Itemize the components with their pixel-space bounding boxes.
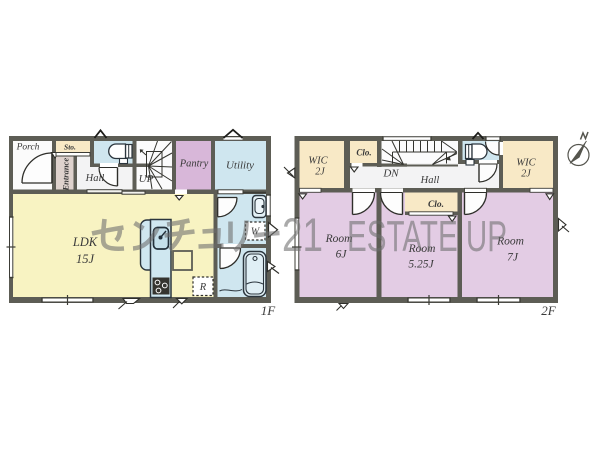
svg-text:ESTATE UP: ESTATE UP	[347, 212, 507, 261]
svg-text:Porch: Porch	[16, 143, 40, 153]
svg-text:Utility: Utility	[226, 160, 254, 172]
svg-text:R: R	[199, 282, 207, 293]
svg-text:Clo.: Clo.	[428, 200, 444, 210]
svg-text:WIC: WIC	[308, 156, 328, 167]
svg-text:LDK: LDK	[72, 235, 98, 249]
svg-text:Entrance: Entrance	[61, 158, 71, 192]
svg-text:21: 21	[282, 208, 323, 261]
svg-text:DN: DN	[382, 168, 399, 180]
svg-text:Hall: Hall	[420, 175, 440, 186]
svg-text:Sto.: Sto.	[64, 143, 76, 152]
svg-text:6J: 6J	[336, 249, 348, 261]
svg-text:2F: 2F	[541, 303, 557, 318]
svg-text:UP: UP	[139, 173, 154, 185]
svg-text:2J: 2J	[521, 169, 531, 180]
svg-text:WIC: WIC	[516, 158, 536, 169]
svg-text:Hall: Hall	[85, 173, 105, 184]
svg-text:15J: 15J	[76, 252, 96, 266]
svg-text:1F: 1F	[261, 303, 277, 318]
svg-text:2J: 2J	[315, 167, 325, 178]
svg-text:7J: 7J	[507, 252, 519, 264]
svg-text:Clo.: Clo.	[356, 148, 371, 158]
svg-text:Pantry: Pantry	[179, 159, 209, 170]
